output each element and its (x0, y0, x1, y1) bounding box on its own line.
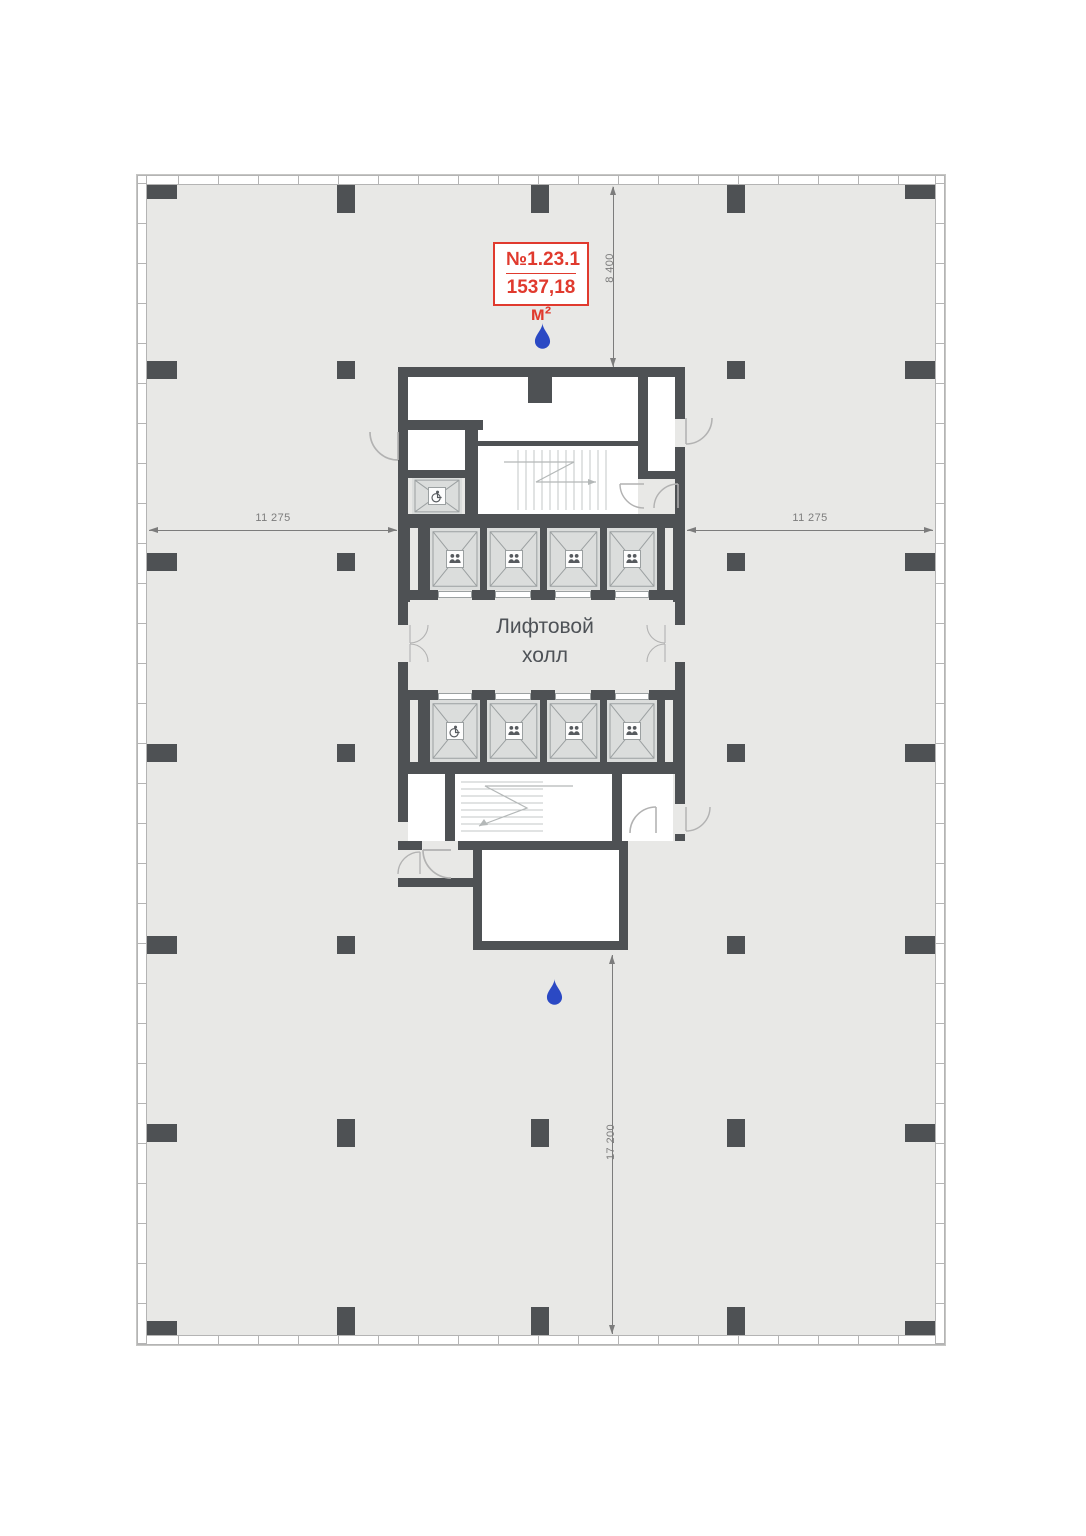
wall (473, 841, 628, 850)
wall (531, 590, 555, 600)
wall (398, 430, 408, 514)
water-drop-icon (546, 978, 563, 1006)
wall (473, 941, 628, 950)
column (905, 936, 935, 954)
elevator-door (438, 591, 472, 598)
wall (480, 700, 487, 762)
elevator-hall-line1: Лифтовой (455, 612, 635, 641)
wall (398, 878, 476, 887)
column (147, 744, 177, 762)
wall (540, 700, 547, 762)
entrance-marker-bottom (546, 978, 563, 1006)
column (727, 185, 745, 213)
door-arc (647, 625, 665, 643)
column (531, 185, 549, 213)
wall (408, 470, 465, 478)
facade-mullions-bottom (137, 1335, 945, 1345)
wall (540, 528, 547, 590)
two-people-icon (623, 550, 641, 568)
two-people-icon (505, 550, 523, 568)
column (727, 936, 745, 954)
elevator-door (438, 693, 472, 700)
column (531, 1307, 549, 1335)
elevator-shaft-accessible (430, 700, 480, 762)
wall (619, 841, 628, 950)
wall (675, 662, 685, 692)
vestibule-lower-left (408, 774, 445, 841)
wall (600, 700, 607, 762)
column (727, 1307, 745, 1335)
facade-mullions-left (137, 175, 147, 1345)
dimension-arrow (609, 955, 615, 964)
elevator-shaft (430, 528, 480, 590)
side-room (648, 377, 675, 471)
wall (472, 690, 495, 700)
wall (649, 690, 685, 700)
column (337, 1307, 355, 1335)
wall (675, 367, 685, 419)
column (337, 1119, 355, 1147)
column (905, 1124, 935, 1142)
wall (591, 690, 615, 700)
elevator-hall-label: Лифтовой холл (455, 612, 635, 670)
closet (408, 430, 465, 470)
elevator-shaft (487, 528, 540, 590)
column (905, 1321, 935, 1335)
door-arc (630, 804, 656, 836)
column (337, 185, 355, 213)
wall (480, 528, 487, 590)
facade-mullions-right (935, 175, 945, 1345)
column (905, 185, 935, 199)
elevator-shaft-accessible (412, 478, 462, 514)
wall (473, 841, 482, 950)
elevator-shaft (547, 700, 600, 762)
door-arc (370, 430, 398, 462)
wall (675, 774, 685, 804)
wall (398, 841, 422, 850)
dimension-label-bottom: 17 200 (605, 1112, 617, 1172)
column (905, 744, 935, 762)
wall (591, 590, 615, 600)
dimension-line (149, 530, 397, 531)
wall (531, 690, 555, 700)
dimension-arrow (610, 186, 616, 195)
stairs-upper (478, 446, 638, 514)
unit-area: 1537,18 м² (495, 274, 587, 328)
dimension-arrow (388, 527, 397, 533)
column (147, 361, 177, 379)
unit-label[interactable]: №1.23.1 1537,18 м² (493, 242, 589, 306)
column (905, 361, 935, 379)
door-arc (410, 625, 428, 643)
wall (398, 662, 408, 692)
wall (398, 514, 685, 528)
entrance-marker-top (534, 322, 551, 350)
column (727, 1119, 745, 1147)
column (727, 744, 745, 762)
elevator-hall-line2: холл (455, 641, 635, 670)
door-arc (423, 849, 451, 879)
column (147, 936, 177, 954)
elevator-door (615, 591, 649, 598)
two-people-icon (505, 722, 523, 740)
wall (398, 762, 685, 774)
dimension-arrow (924, 527, 933, 533)
column (147, 1124, 177, 1142)
wheelchair-icon (446, 722, 464, 740)
dimension-arrow (609, 1325, 615, 1334)
wall (472, 590, 495, 600)
wall (675, 834, 685, 841)
wall (675, 598, 685, 625)
wall (638, 375, 648, 479)
floor-plan: Лифтовой холл 8 400 11 275 11 275 17 200… (0, 0, 1086, 1536)
column (727, 553, 745, 571)
door-arc (398, 850, 420, 876)
elevator-door (495, 591, 531, 598)
door-arc (686, 804, 710, 834)
wall (398, 700, 410, 762)
wall (528, 377, 552, 403)
wall (657, 528, 665, 590)
door-arc (647, 644, 665, 662)
wall (418, 700, 430, 762)
two-people-icon (565, 722, 583, 740)
wall (657, 700, 665, 762)
wheelchair-icon (428, 487, 446, 505)
wall (398, 774, 408, 822)
wall (600, 528, 607, 590)
stairs-lower (455, 774, 612, 841)
two-people-icon (565, 550, 583, 568)
elevator-door (495, 693, 531, 700)
elevator-shaft (607, 700, 657, 762)
elevator-door (555, 693, 591, 700)
column (727, 361, 745, 379)
column (147, 185, 177, 199)
facade-mullions-top (137, 175, 945, 185)
wall (673, 700, 685, 762)
dimension-arrow (149, 527, 158, 533)
column (337, 744, 355, 762)
dimension-arrow (610, 358, 616, 367)
wall (612, 774, 622, 841)
elevator-shaft (547, 528, 600, 590)
column (337, 361, 355, 379)
two-people-icon (446, 550, 464, 568)
dimension-label-left: 11 275 (223, 512, 323, 524)
dimension-arrow (687, 527, 696, 533)
door-arc (410, 644, 428, 662)
water-drop-icon (534, 322, 551, 350)
elevator-shaft (607, 528, 657, 590)
dimension-label-right: 11 275 (760, 512, 860, 524)
column (337, 936, 355, 954)
wall (398, 598, 408, 625)
wall (398, 690, 438, 700)
wall (418, 528, 430, 590)
column (147, 1321, 177, 1335)
column (147, 553, 177, 571)
column (531, 1119, 549, 1147)
door-arc (654, 481, 678, 511)
wall (465, 425, 478, 514)
column (905, 553, 935, 571)
elevator-door (615, 693, 649, 700)
elevator-door (555, 591, 591, 598)
door-arc (686, 416, 712, 446)
dimension-label-top: 8 400 (604, 241, 616, 295)
door-arc (617, 484, 647, 508)
unit-number: №1.23.1 (506, 248, 576, 274)
elevator-shaft (487, 700, 540, 762)
column (337, 553, 355, 571)
wall (445, 774, 455, 841)
two-people-icon (623, 722, 641, 740)
dimension-line (687, 530, 933, 531)
bottom-room (482, 850, 619, 941)
